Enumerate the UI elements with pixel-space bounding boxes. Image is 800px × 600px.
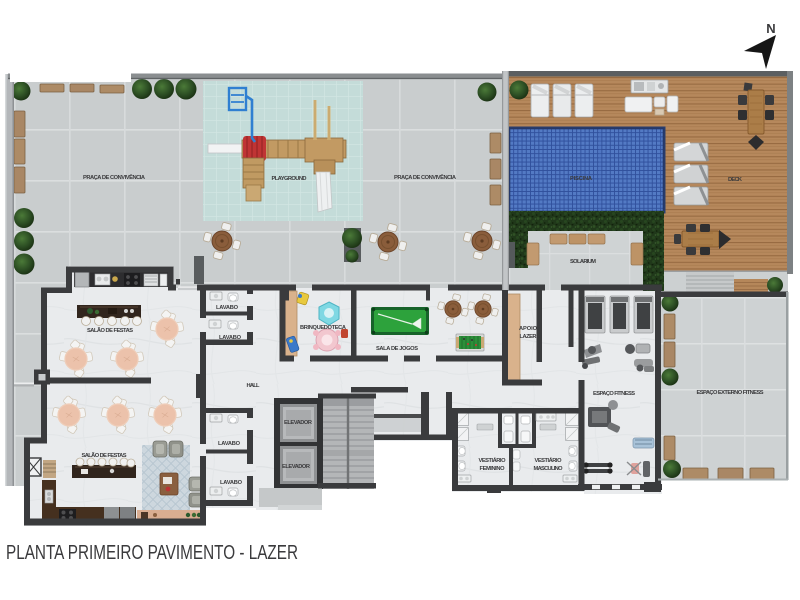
- svg-text:LAVABO: LAVABO: [219, 335, 242, 341]
- svg-text:MASCULINO: MASCULINO: [534, 466, 564, 472]
- svg-text:VESTIÁRIO: VESTIÁRIO: [479, 457, 507, 464]
- svg-text:LAVABO: LAVABO: [220, 480, 243, 486]
- svg-text:APOIO: APOIO: [519, 326, 538, 332]
- svg-text:LAVABO: LAVABO: [218, 441, 241, 447]
- svg-text:SALA DE JOGOS: SALA DE JOGOS: [376, 346, 418, 352]
- svg-text:BRINQUEDOTECA: BRINQUEDOTECA: [300, 325, 346, 331]
- svg-text:VESTIÁRIO: VESTIÁRIO: [535, 457, 563, 464]
- svg-text:PLANTA PRIMEIRO PAVIMENTO - LA: PLANTA PRIMEIRO PAVIMENTO - LAZER: [6, 542, 298, 564]
- svg-text:SOLARIUM: SOLARIUM: [570, 259, 596, 265]
- svg-text:HALL: HALL: [247, 383, 261, 389]
- svg-text:SALÃO DE FESTAS: SALÃO DE FESTAS: [82, 452, 127, 459]
- svg-text:LAVABO: LAVABO: [216, 305, 239, 311]
- svg-text:PISCINA: PISCINA: [570, 176, 592, 182]
- svg-text:ELEVADOR: ELEVADOR: [284, 420, 312, 426]
- svg-text:SALÃO DE FESTAS: SALÃO DE FESTAS: [87, 327, 133, 334]
- svg-text:PLAYGROUND: PLAYGROUND: [272, 176, 307, 182]
- svg-text:ELEVADOR: ELEVADOR: [282, 464, 310, 470]
- svg-text:ESPAÇO EXTERNO FITNESS: ESPAÇO EXTERNO FITNESS: [697, 390, 764, 396]
- svg-text:PRAÇA DE CONVIVÊNCIA: PRAÇA DE CONVIVÊNCIA: [83, 173, 145, 181]
- svg-text:LAZER: LAZER: [520, 334, 537, 340]
- svg-text:ESPAÇO FITNESS: ESPAÇO FITNESS: [593, 391, 635, 397]
- svg-text:FEMININO: FEMININO: [480, 466, 506, 472]
- svg-text:N: N: [766, 21, 775, 36]
- svg-text:PRAÇA DE CONVIVÊNCIA: PRAÇA DE CONVIVÊNCIA: [394, 173, 456, 181]
- svg-text:DECK: DECK: [728, 177, 743, 183]
